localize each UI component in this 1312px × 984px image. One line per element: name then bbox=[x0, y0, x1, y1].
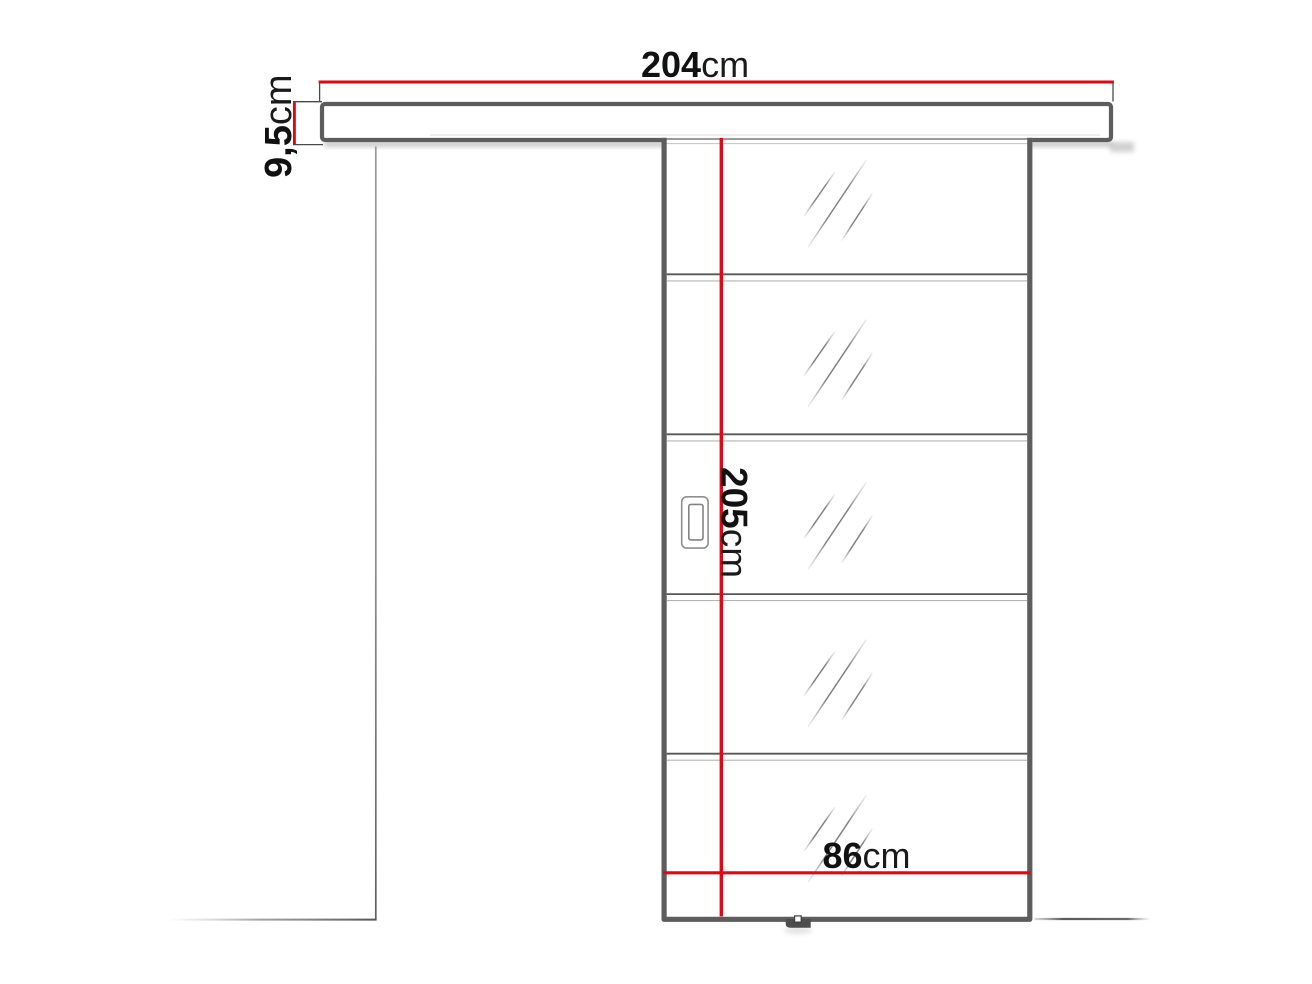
svg-text:204cm: 204cm bbox=[641, 44, 749, 85]
svg-text:9,5cm: 9,5cm bbox=[258, 75, 300, 178]
svg-text:86cm: 86cm bbox=[823, 835, 911, 876]
svg-text:205cm: 205cm bbox=[714, 467, 755, 578]
